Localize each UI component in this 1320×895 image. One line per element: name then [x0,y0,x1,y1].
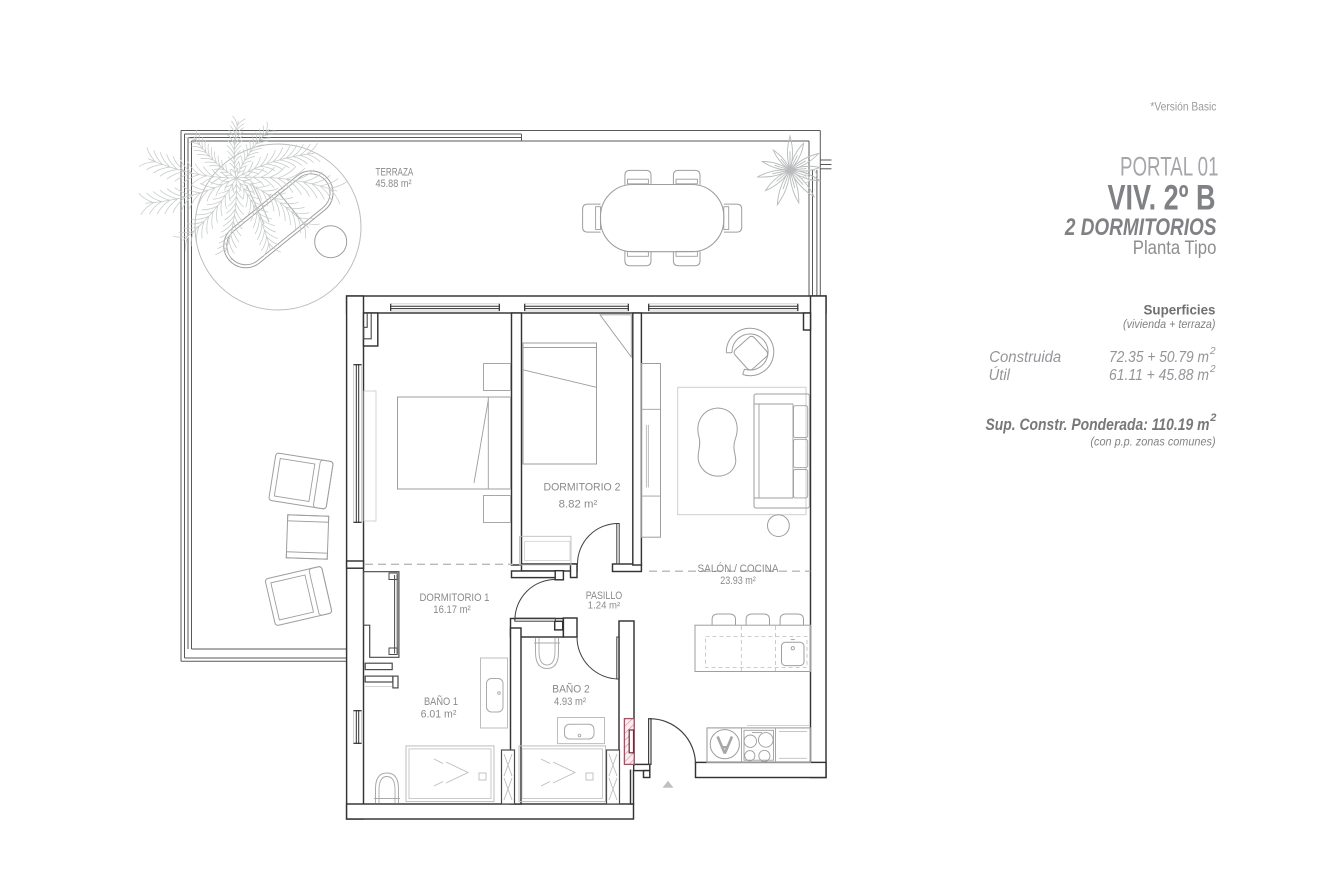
svg-text:BAÑO 1: BAÑO 1 [424,695,458,708]
svg-text:2: 2 [1209,364,1216,375]
svg-text:23.93 m²: 23.93 m² [720,575,756,587]
svg-text:2: 2 [1209,412,1216,424]
svg-text:VIV. 2º B: VIV. 2º B [1108,178,1216,218]
svg-text:8.82 m²: 8.82 m² [559,499,598,511]
svg-text:TERRAZA: TERRAZA [376,167,414,179]
svg-text:BAÑO 2: BAÑO 2 [552,682,590,695]
svg-text:Construida: Construida [989,349,1061,366]
svg-text:SALÓN / COCINA: SALÓN / COCINA [698,562,780,575]
svg-text:45.88 m²: 45.88 m² [376,178,412,190]
svg-text:Útil: Útil [989,367,1011,384]
svg-text:72.35 + 50.79 m: 72.35 + 50.79 m [1109,349,1209,366]
svg-text:6.01 m²: 6.01 m² [421,708,457,720]
svg-text:4.93 m²: 4.93 m² [554,696,586,708]
svg-text:Sup. Constr. Ponderada: 110.19: Sup. Constr. Ponderada: 110.19 m [986,416,1210,434]
svg-text:16.17 m²: 16.17 m² [433,604,471,616]
svg-text:Planta Tipo: Planta Tipo [1133,238,1217,259]
svg-text:*Versión Basic: *Versión Basic [1150,100,1216,114]
svg-text:DORMITORIO 2: DORMITORIO 2 [544,482,621,494]
svg-text:Superficies: Superficies [1144,302,1216,318]
svg-text:1.24 m²: 1.24 m² [588,601,621,612]
svg-text:DORMITORIO 1: DORMITORIO 1 [420,592,490,604]
svg-text:61.11 + 45.88 m: 61.11 + 45.88 m [1109,367,1209,384]
svg-text:(con p.p. zonas comunes): (con p.p. zonas comunes) [1090,435,1215,449]
svg-text:2: 2 [1209,346,1216,357]
svg-text:(vivienda + terraza): (vivienda + terraza) [1123,317,1216,331]
